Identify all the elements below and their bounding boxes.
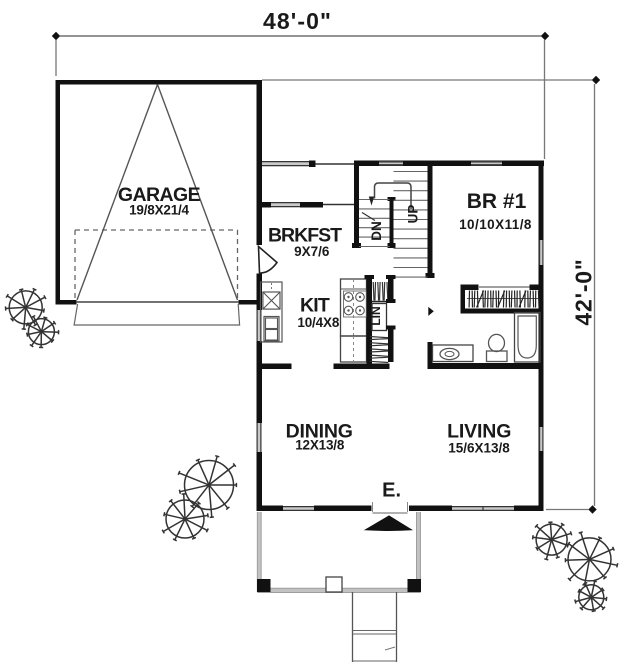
svg-text:19/8X21/4: 19/8X21/4 [129,203,189,218]
svg-text:9X7/6: 9X7/6 [294,244,330,259]
svg-text:UP: UP [406,205,421,224]
svg-text:KIT: KIT [300,295,330,317]
svg-text:DN: DN [369,221,384,241]
svg-text:42'-0": 42'-0" [571,258,597,325]
svg-text:12X13/8: 12X13/8 [295,438,345,453]
svg-text:10/10X11/8: 10/10X11/8 [459,217,532,232]
svg-text:10/4X8: 10/4X8 [297,315,340,330]
svg-text:48'-0": 48'-0" [263,8,332,34]
svg-text:E.: E. [382,479,401,501]
svg-text:LIN: LIN [369,306,383,325]
svg-text:LIVING: LIVING [447,420,511,442]
svg-text:15/6X13/8: 15/6X13/8 [448,441,510,456]
svg-text:BR #1: BR #1 [467,190,527,213]
